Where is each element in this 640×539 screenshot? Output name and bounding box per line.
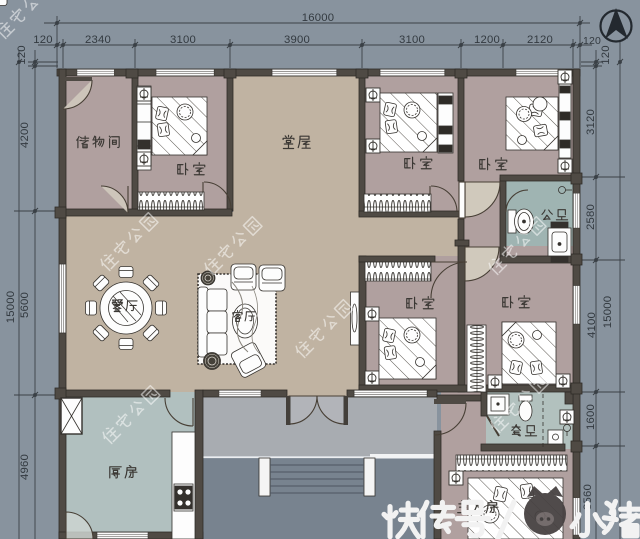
svg-text:3120: 3120 (585, 109, 597, 135)
svg-text:120: 120 (16, 45, 28, 64)
svg-text:3100: 3100 (399, 34, 425, 46)
svg-text:120: 120 (33, 34, 52, 46)
svg-text:1200: 1200 (474, 34, 500, 46)
svg-text:120: 120 (600, 45, 612, 64)
svg-text:15000: 15000 (5, 291, 17, 323)
svg-text:3900: 3900 (284, 34, 310, 46)
svg-text:4100: 4100 (586, 312, 598, 338)
svg-text:4960: 4960 (19, 454, 31, 480)
svg-text:1600: 1600 (585, 404, 597, 430)
svg-text:4200: 4200 (19, 122, 31, 148)
svg-text:15000: 15000 (602, 296, 614, 328)
svg-text:5600: 5600 (19, 292, 31, 318)
svg-text:3100: 3100 (170, 34, 196, 46)
svg-text:2120: 2120 (527, 34, 553, 46)
svg-text:16000: 16000 (302, 12, 334, 24)
svg-text:2580: 2580 (585, 204, 597, 230)
svg-text:120: 120 (583, 35, 601, 47)
svg-text:2340: 2340 (85, 34, 111, 46)
